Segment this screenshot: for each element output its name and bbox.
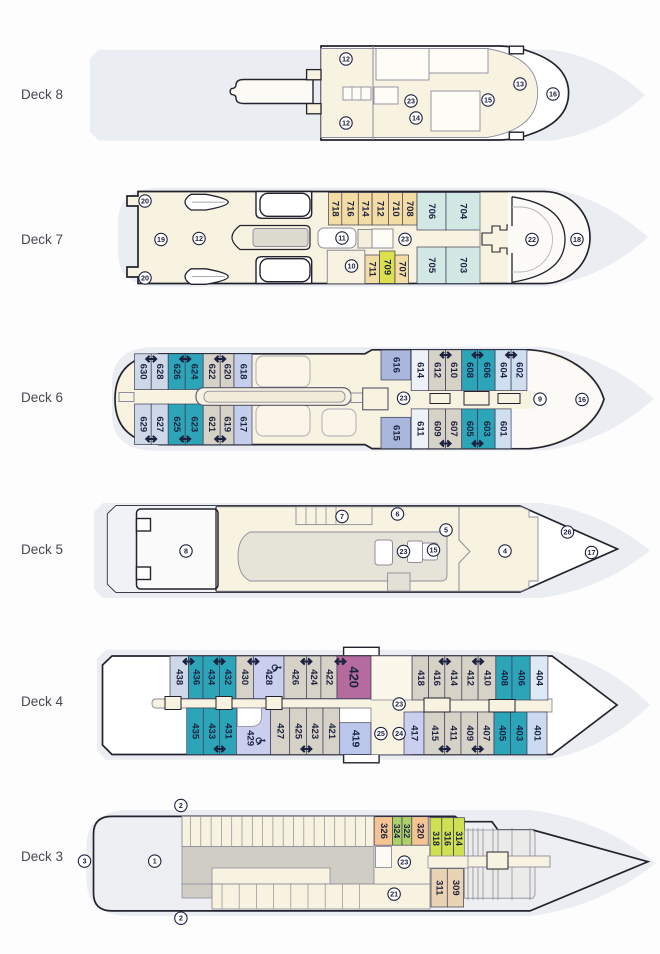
svg-text:7: 7 bbox=[340, 512, 344, 521]
svg-text:318: 318 bbox=[431, 831, 441, 846]
svg-text:311: 311 bbox=[434, 880, 445, 896]
svg-text:23: 23 bbox=[401, 235, 409, 244]
svg-text:617: 617 bbox=[238, 416, 249, 432]
svg-text:21: 21 bbox=[390, 889, 398, 898]
svg-text:415: 415 bbox=[429, 725, 440, 742]
svg-text:626: 626 bbox=[171, 364, 182, 380]
svg-text:614: 614 bbox=[414, 362, 425, 379]
svg-text:604: 604 bbox=[498, 362, 509, 379]
svg-text:4: 4 bbox=[503, 546, 507, 555]
svg-text:425: 425 bbox=[293, 723, 304, 740]
svg-text:706: 706 bbox=[426, 203, 437, 219]
svg-text:15: 15 bbox=[484, 95, 492, 104]
svg-text:320: 320 bbox=[415, 823, 426, 839]
svg-text:23: 23 bbox=[400, 394, 408, 403]
svg-text:314: 314 bbox=[454, 831, 464, 846]
svg-text:708: 708 bbox=[404, 201, 415, 217]
svg-text:Deck 4: Deck 4 bbox=[21, 694, 64, 709]
svg-text:420: 420 bbox=[346, 666, 361, 688]
svg-text:23: 23 bbox=[407, 96, 415, 105]
svg-text:403: 403 bbox=[513, 725, 524, 741]
svg-text:414: 414 bbox=[448, 670, 459, 687]
svg-text:23: 23 bbox=[395, 699, 403, 708]
svg-text:434: 434 bbox=[206, 669, 217, 686]
svg-text:416: 416 bbox=[431, 670, 442, 686]
svg-text:432: 432 bbox=[222, 669, 233, 685]
svg-text:431: 431 bbox=[223, 723, 234, 740]
svg-text:26: 26 bbox=[564, 527, 572, 536]
svg-text:2: 2 bbox=[179, 801, 183, 810]
svg-text:716: 716 bbox=[345, 201, 356, 217]
svg-text:424: 424 bbox=[308, 669, 319, 686]
svg-text:705: 705 bbox=[426, 257, 437, 274]
svg-text:419: 419 bbox=[349, 730, 361, 748]
svg-text:409: 409 bbox=[464, 725, 475, 741]
svg-text:326: 326 bbox=[378, 823, 389, 839]
svg-text:606: 606 bbox=[481, 362, 492, 378]
svg-text:608: 608 bbox=[464, 362, 475, 378]
svg-text:6: 6 bbox=[396, 509, 400, 518]
svg-text:15: 15 bbox=[430, 545, 438, 554]
svg-text:704: 704 bbox=[458, 203, 469, 220]
svg-text:Deck 6: Deck 6 bbox=[21, 390, 63, 405]
svg-text:703: 703 bbox=[458, 257, 469, 273]
svg-text:710: 710 bbox=[390, 201, 401, 217]
svg-text:612: 612 bbox=[432, 362, 443, 378]
svg-text:23: 23 bbox=[400, 547, 408, 556]
svg-text:14: 14 bbox=[412, 113, 420, 122]
svg-text:709: 709 bbox=[382, 259, 393, 275]
svg-text:22: 22 bbox=[528, 235, 536, 244]
svg-text:615: 615 bbox=[390, 425, 401, 442]
svg-text:17: 17 bbox=[588, 548, 596, 557]
svg-text:436: 436 bbox=[190, 669, 201, 685]
svg-text:711: 711 bbox=[367, 262, 378, 278]
svg-text:622: 622 bbox=[206, 364, 217, 380]
svg-text:421: 421 bbox=[326, 723, 337, 740]
svg-text:2: 2 bbox=[179, 914, 183, 923]
svg-text:417: 417 bbox=[409, 725, 420, 741]
svg-text:621: 621 bbox=[206, 416, 217, 433]
svg-text:601: 601 bbox=[498, 421, 509, 438]
svg-text:429: 429 bbox=[245, 730, 256, 746]
svg-text:Deck 5: Deck 5 bbox=[21, 542, 63, 557]
svg-text:412: 412 bbox=[465, 670, 476, 686]
svg-text:707: 707 bbox=[396, 261, 407, 277]
svg-text:11: 11 bbox=[338, 233, 346, 242]
svg-text:618: 618 bbox=[238, 364, 249, 380]
svg-text:3: 3 bbox=[83, 856, 87, 865]
svg-text:Deck 3: Deck 3 bbox=[21, 849, 63, 864]
svg-text:406: 406 bbox=[516, 670, 527, 686]
svg-text:623: 623 bbox=[189, 416, 200, 432]
svg-text:433: 433 bbox=[206, 723, 217, 739]
svg-text:16: 16 bbox=[549, 89, 557, 98]
svg-text:19: 19 bbox=[157, 235, 165, 244]
svg-text:324: 324 bbox=[392, 824, 402, 839]
svg-text:404: 404 bbox=[534, 670, 545, 687]
svg-text:18: 18 bbox=[573, 235, 581, 244]
svg-text:428: 428 bbox=[263, 669, 274, 685]
svg-text:619: 619 bbox=[222, 416, 233, 432]
svg-text:712: 712 bbox=[375, 201, 386, 217]
svg-text:408: 408 bbox=[498, 670, 509, 686]
svg-text:628: 628 bbox=[154, 364, 165, 380]
svg-text:Deck 8: Deck 8 bbox=[21, 87, 63, 102]
svg-text:616: 616 bbox=[390, 357, 401, 373]
svg-text:609: 609 bbox=[432, 421, 443, 437]
svg-text:16: 16 bbox=[578, 395, 586, 404]
svg-text:20: 20 bbox=[141, 196, 149, 205]
svg-text:630: 630 bbox=[137, 364, 148, 380]
svg-text:625: 625 bbox=[171, 416, 182, 433]
svg-text:427: 427 bbox=[275, 723, 286, 739]
svg-text:12: 12 bbox=[342, 118, 350, 127]
svg-text:422: 422 bbox=[323, 669, 334, 685]
svg-text:9: 9 bbox=[538, 394, 542, 403]
svg-text:438: 438 bbox=[174, 669, 185, 685]
svg-text:624: 624 bbox=[189, 364, 200, 381]
svg-text:418: 418 bbox=[415, 670, 426, 686]
svg-text:603: 603 bbox=[481, 421, 492, 437]
svg-text:8: 8 bbox=[184, 546, 188, 555]
svg-text:405: 405 bbox=[497, 725, 508, 742]
svg-text:1: 1 bbox=[153, 856, 157, 865]
svg-text:25: 25 bbox=[377, 729, 385, 738]
svg-text:627: 627 bbox=[154, 416, 165, 432]
svg-text:10: 10 bbox=[348, 261, 356, 270]
svg-text:13: 13 bbox=[516, 79, 524, 88]
svg-text:426: 426 bbox=[290, 669, 301, 685]
svg-text:620: 620 bbox=[222, 364, 233, 380]
svg-text:610: 610 bbox=[448, 362, 459, 378]
svg-text:430: 430 bbox=[239, 669, 250, 685]
svg-text:Deck 7: Deck 7 bbox=[21, 232, 63, 247]
svg-text:12: 12 bbox=[195, 234, 203, 243]
svg-text:605: 605 bbox=[464, 421, 475, 438]
svg-text:607: 607 bbox=[448, 421, 459, 437]
svg-text:322: 322 bbox=[402, 824, 412, 839]
svg-text:23: 23 bbox=[400, 857, 408, 866]
svg-text:407: 407 bbox=[480, 725, 491, 741]
svg-text:435: 435 bbox=[190, 723, 201, 740]
svg-text:309: 309 bbox=[450, 880, 461, 896]
svg-text:5: 5 bbox=[444, 525, 448, 534]
svg-text:20: 20 bbox=[141, 273, 149, 282]
svg-text:12: 12 bbox=[342, 54, 350, 63]
svg-text:24: 24 bbox=[395, 729, 403, 738]
svg-text:714: 714 bbox=[360, 201, 371, 218]
svg-text:611: 611 bbox=[414, 421, 425, 437]
svg-text:602: 602 bbox=[514, 362, 525, 378]
svg-text:718: 718 bbox=[330, 201, 341, 217]
svg-text:411: 411 bbox=[447, 726, 458, 742]
svg-text:629: 629 bbox=[137, 416, 148, 432]
svg-text:316: 316 bbox=[443, 831, 453, 846]
svg-text:401: 401 bbox=[532, 725, 543, 742]
svg-text:423: 423 bbox=[309, 723, 320, 739]
svg-text:410: 410 bbox=[482, 670, 493, 686]
